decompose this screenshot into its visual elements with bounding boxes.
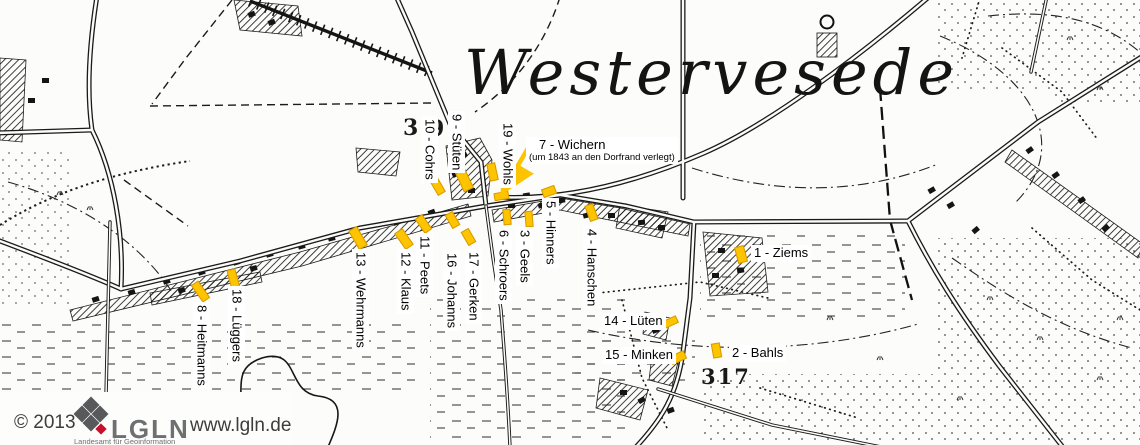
lgln-subtitle: Landesamt für Geoinformation	[74, 437, 175, 445]
lgln-logo-icon	[72, 398, 112, 438]
lgln-url: www.lgln.de	[190, 415, 291, 437]
footer: © 2013 LGLN Landesamt für Geoinformation…	[0, 0, 1140, 445]
copyright-text: © 2013	[14, 412, 76, 434]
historical-map-westervesede: Westervesede 39317 1 - Ziems2 - Bahls3 -…	[0, 0, 1140, 445]
